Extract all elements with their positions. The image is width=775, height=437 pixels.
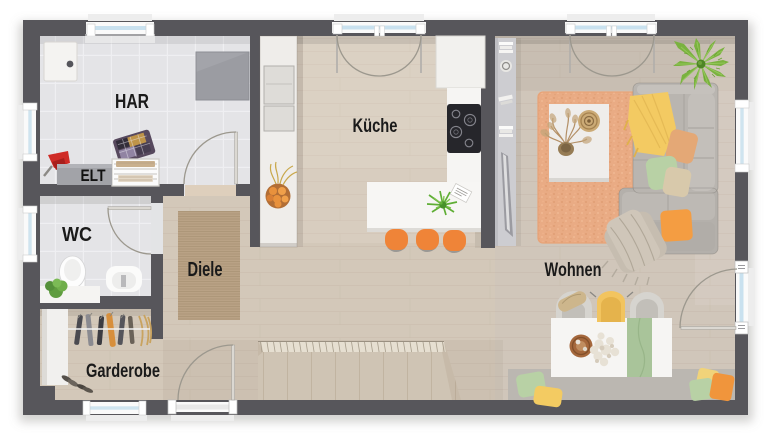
svg-text:Wohnen: Wohnen <box>545 259 602 281</box>
svg-text:ELT: ELT <box>81 167 106 185</box>
svg-text:Diele: Diele <box>188 259 223 281</box>
svg-text:HAR: HAR <box>115 91 149 113</box>
svg-text:WC: WC <box>62 224 92 246</box>
svg-text:Küche: Küche <box>353 116 398 137</box>
svg-text:Garderobe: Garderobe <box>86 361 160 382</box>
